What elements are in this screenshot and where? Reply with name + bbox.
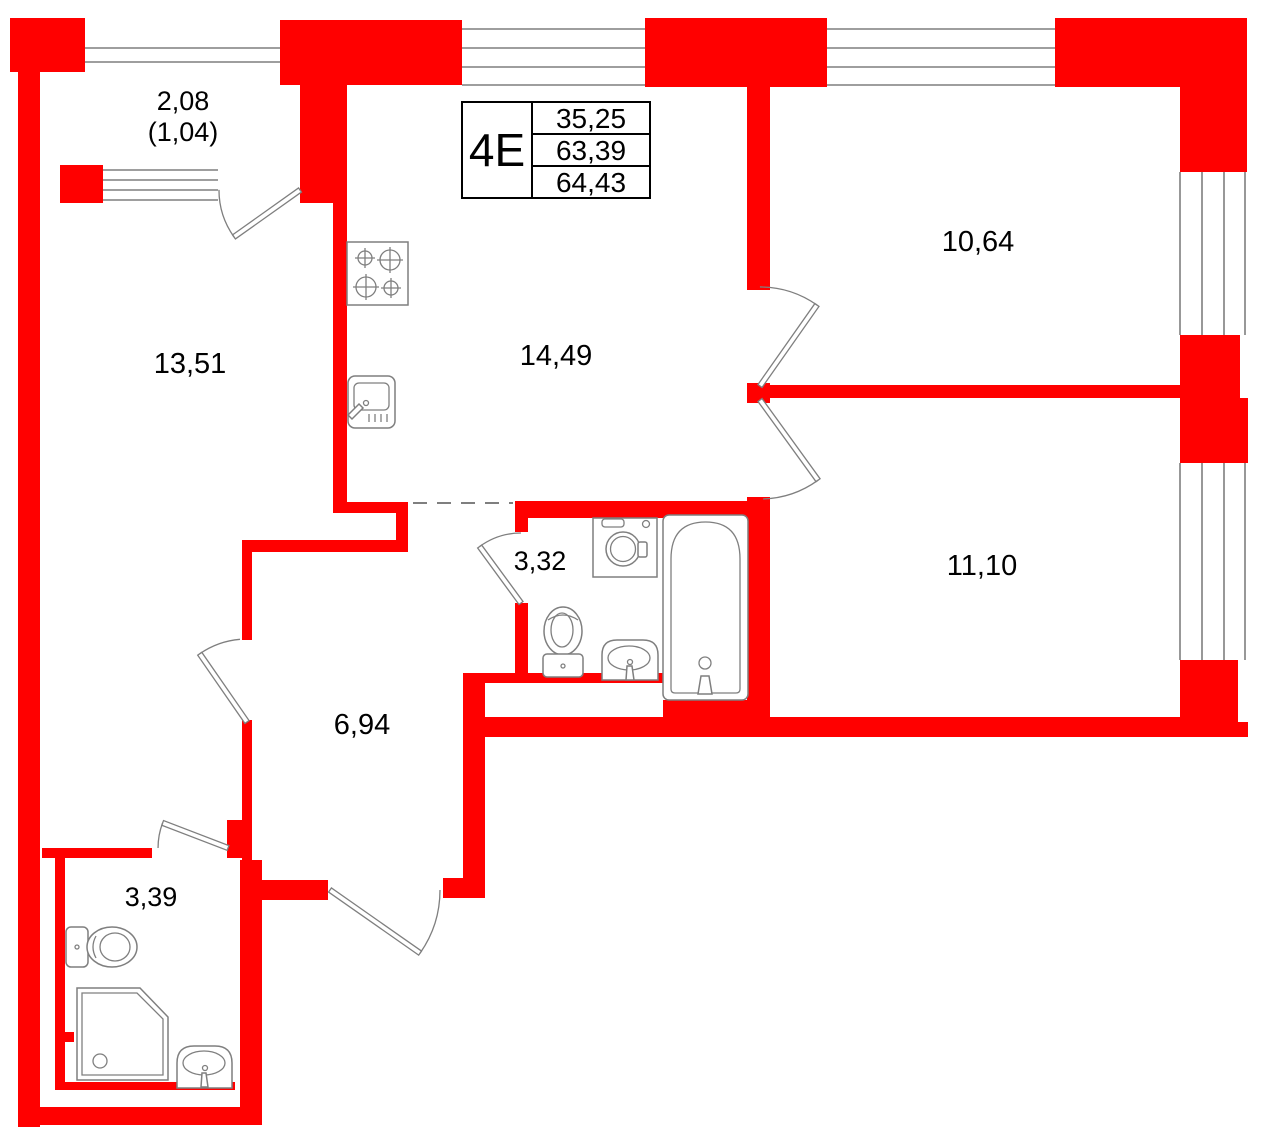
door-living-room (198, 630, 281, 723)
door-bedroom-bottom (715, 399, 820, 513)
window-right-bedroom-bottom (1180, 463, 1245, 660)
shower-icon (77, 988, 168, 1080)
window-top-bedroom (827, 29, 1055, 85)
room-label-balcony-coef: (1,04) (148, 117, 219, 147)
wc-toilet-icon (66, 927, 137, 967)
window-balcony-sill (103, 170, 218, 200)
area-row-2: 63,39 (556, 135, 626, 166)
room-label-bedroom-bottom: 11,10 (947, 550, 1017, 582)
window-top-kitchen (462, 29, 645, 85)
room-label-hall: 6,94 (334, 709, 390, 741)
toilet-icon (543, 607, 583, 677)
door-entrance (329, 838, 457, 955)
room-label-wc: 3,39 (125, 882, 178, 912)
stove-icon (347, 242, 408, 305)
room-labels: 2,08 (1,04) 13,51 14,49 10,64 11,10 3,32… (125, 86, 1017, 912)
floor-plan: 4Е 35,25 63,39 64,43 2,08 (1,04) 13,51 1… (0, 0, 1268, 1148)
room-label-bedroom-top: 10,64 (942, 226, 1015, 258)
room-label-bathroom: 3,32 (514, 546, 567, 576)
room-label-balcony: 2,08 (157, 86, 210, 116)
door-wc (154, 821, 229, 872)
bathtub-icon (663, 515, 748, 700)
title-block: 4Е 35,25 63,39 64,43 (462, 102, 650, 198)
wc-sink-icon (177, 1046, 232, 1088)
unit-label: 4Е (469, 124, 525, 176)
window-right-bedroom-top (1180, 172, 1245, 335)
area-row-3: 64,43 (556, 167, 626, 198)
washing-machine-icon (593, 518, 657, 577)
bathroom-sink-icon (602, 640, 658, 680)
room-label-kitchen: 14,49 (520, 340, 593, 372)
room-label-living-room: 13,51 (154, 348, 227, 380)
kitchen-sink-icon (348, 376, 395, 428)
door-balcony (207, 152, 302, 239)
window-balcony-glazing (85, 48, 280, 62)
area-row-1: 35,25 (556, 103, 626, 134)
